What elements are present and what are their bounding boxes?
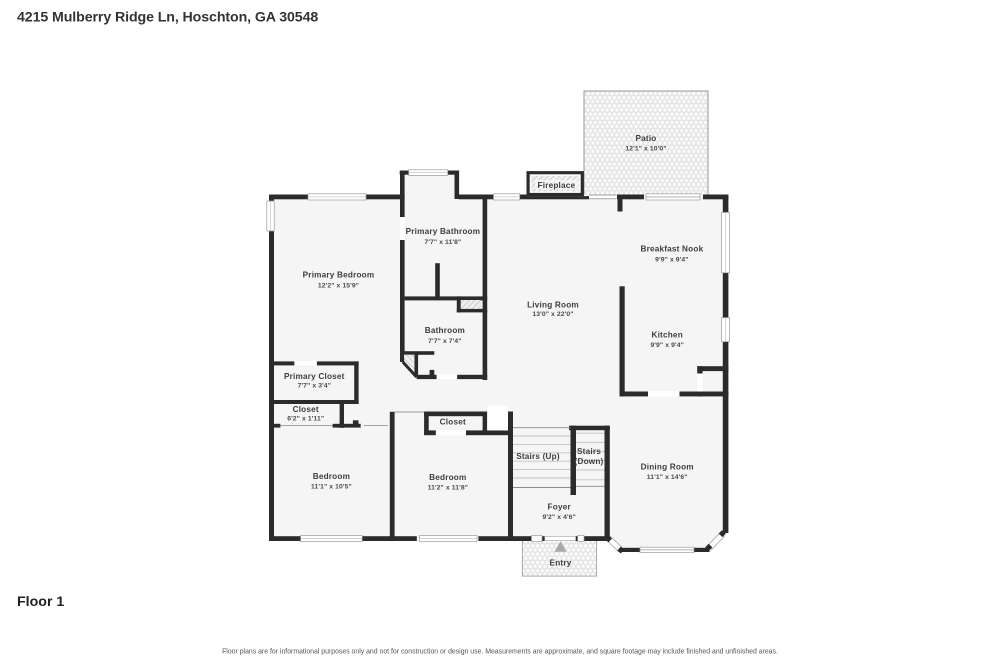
svg-text:7'7" x 7'4": 7'7" x 7'4"	[428, 338, 461, 345]
svg-text:4215 Mulberry Ridge Ln, Hoscht: 4215 Mulberry Ridge Ln, Hoschton, GA 305…	[17, 10, 318, 26]
svg-text:Stairs: Stairs	[577, 447, 601, 456]
svg-text:Stairs (Up): Stairs (Up)	[516, 452, 560, 461]
svg-text:Bedroom: Bedroom	[313, 472, 350, 481]
svg-text:11'1" x 10'5": 11'1" x 10'5"	[311, 484, 352, 491]
svg-text:Entry: Entry	[550, 559, 572, 568]
svg-text:Fireplace: Fireplace	[538, 181, 576, 190]
svg-text:Closet: Closet	[293, 405, 319, 414]
svg-text:Foyer: Foyer	[548, 503, 572, 512]
svg-text:Primary Closet: Primary Closet	[284, 372, 345, 381]
svg-text:Primary Bathroom: Primary Bathroom	[406, 227, 481, 236]
svg-text:Kitchen: Kitchen	[651, 331, 682, 340]
svg-text:13'0" x 22'0": 13'0" x 22'0"	[532, 311, 573, 318]
svg-text:12'2" x 15'9": 12'2" x 15'9"	[318, 283, 359, 290]
svg-text:Closet: Closet	[440, 418, 466, 427]
svg-text:7'7" x 3'4": 7'7" x 3'4"	[298, 383, 331, 390]
svg-text:Bathroom: Bathroom	[425, 326, 465, 335]
svg-text:9'2" x 4'6": 9'2" x 4'6"	[542, 514, 575, 521]
svg-text:Bedroom: Bedroom	[429, 473, 466, 482]
svg-text:11'2" x 11'8": 11'2" x 11'8"	[428, 485, 468, 492]
svg-text:Floor 1: Floor 1	[17, 594, 64, 610]
svg-text:Living Room: Living Room	[527, 301, 579, 310]
svg-text:7'7" x 11'8": 7'7" x 11'8"	[424, 239, 461, 246]
svg-text:9'9" x 9'4": 9'9" x 9'4"	[655, 257, 688, 264]
svg-text:11'1" x 14'6": 11'1" x 14'6"	[647, 474, 688, 481]
svg-text:(Down): (Down)	[575, 457, 604, 466]
svg-text:6'2" x 1'11": 6'2" x 1'11"	[287, 416, 324, 423]
svg-text:Floor plans are for informatio: Floor plans are for informational purpos…	[222, 649, 778, 656]
svg-text:Breakfast Nook: Breakfast Nook	[640, 245, 703, 254]
svg-text:Dining Room: Dining Room	[641, 463, 694, 472]
svg-text:Patio: Patio	[635, 134, 656, 143]
svg-text:Primary Bedroom: Primary Bedroom	[303, 271, 375, 280]
svg-text:12'1" x 10'0": 12'1" x 10'0"	[625, 146, 666, 153]
svg-text:9'9" x 9'4": 9'9" x 9'4"	[650, 342, 683, 349]
